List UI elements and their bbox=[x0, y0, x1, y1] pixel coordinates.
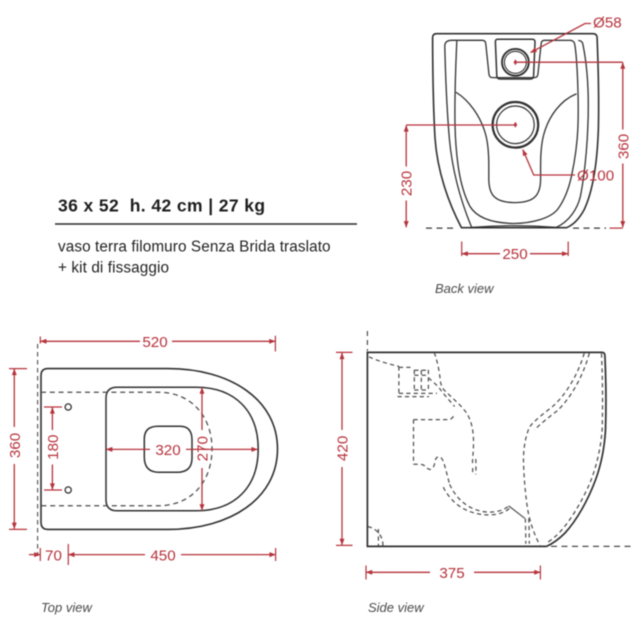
svg-text:320: 320 bbox=[155, 442, 180, 459]
svg-text:250: 250 bbox=[502, 246, 527, 263]
svg-text:Top view: Top view bbox=[41, 600, 93, 615]
svg-text:+ kit di fissaggio: + kit di fissaggio bbox=[58, 260, 169, 277]
svg-text:360: 360 bbox=[615, 134, 632, 159]
svg-text:420: 420 bbox=[335, 436, 352, 461]
svg-text:Ø58: Ø58 bbox=[593, 15, 622, 32]
svg-text:Back view: Back view bbox=[435, 281, 495, 296]
svg-text:70: 70 bbox=[45, 548, 62, 565]
svg-text:vaso terra filomuro Senza Brid: vaso terra filomuro Senza Brida traslato bbox=[58, 239, 331, 256]
svg-text:Side view: Side view bbox=[368, 600, 425, 615]
svg-text:180: 180 bbox=[45, 435, 62, 460]
svg-text:520: 520 bbox=[142, 334, 167, 351]
svg-text:36 x 52 h. 42 cm | 27 kg: 36 x 52 h. 42 cm | 27 kg bbox=[58, 196, 266, 216]
svg-text:230: 230 bbox=[399, 171, 416, 196]
svg-text:Ø100: Ø100 bbox=[577, 168, 614, 185]
svg-text:270: 270 bbox=[195, 436, 212, 461]
svg-text:450: 450 bbox=[150, 548, 175, 565]
svg-text:360: 360 bbox=[7, 433, 24, 458]
svg-text:375: 375 bbox=[439, 565, 464, 582]
